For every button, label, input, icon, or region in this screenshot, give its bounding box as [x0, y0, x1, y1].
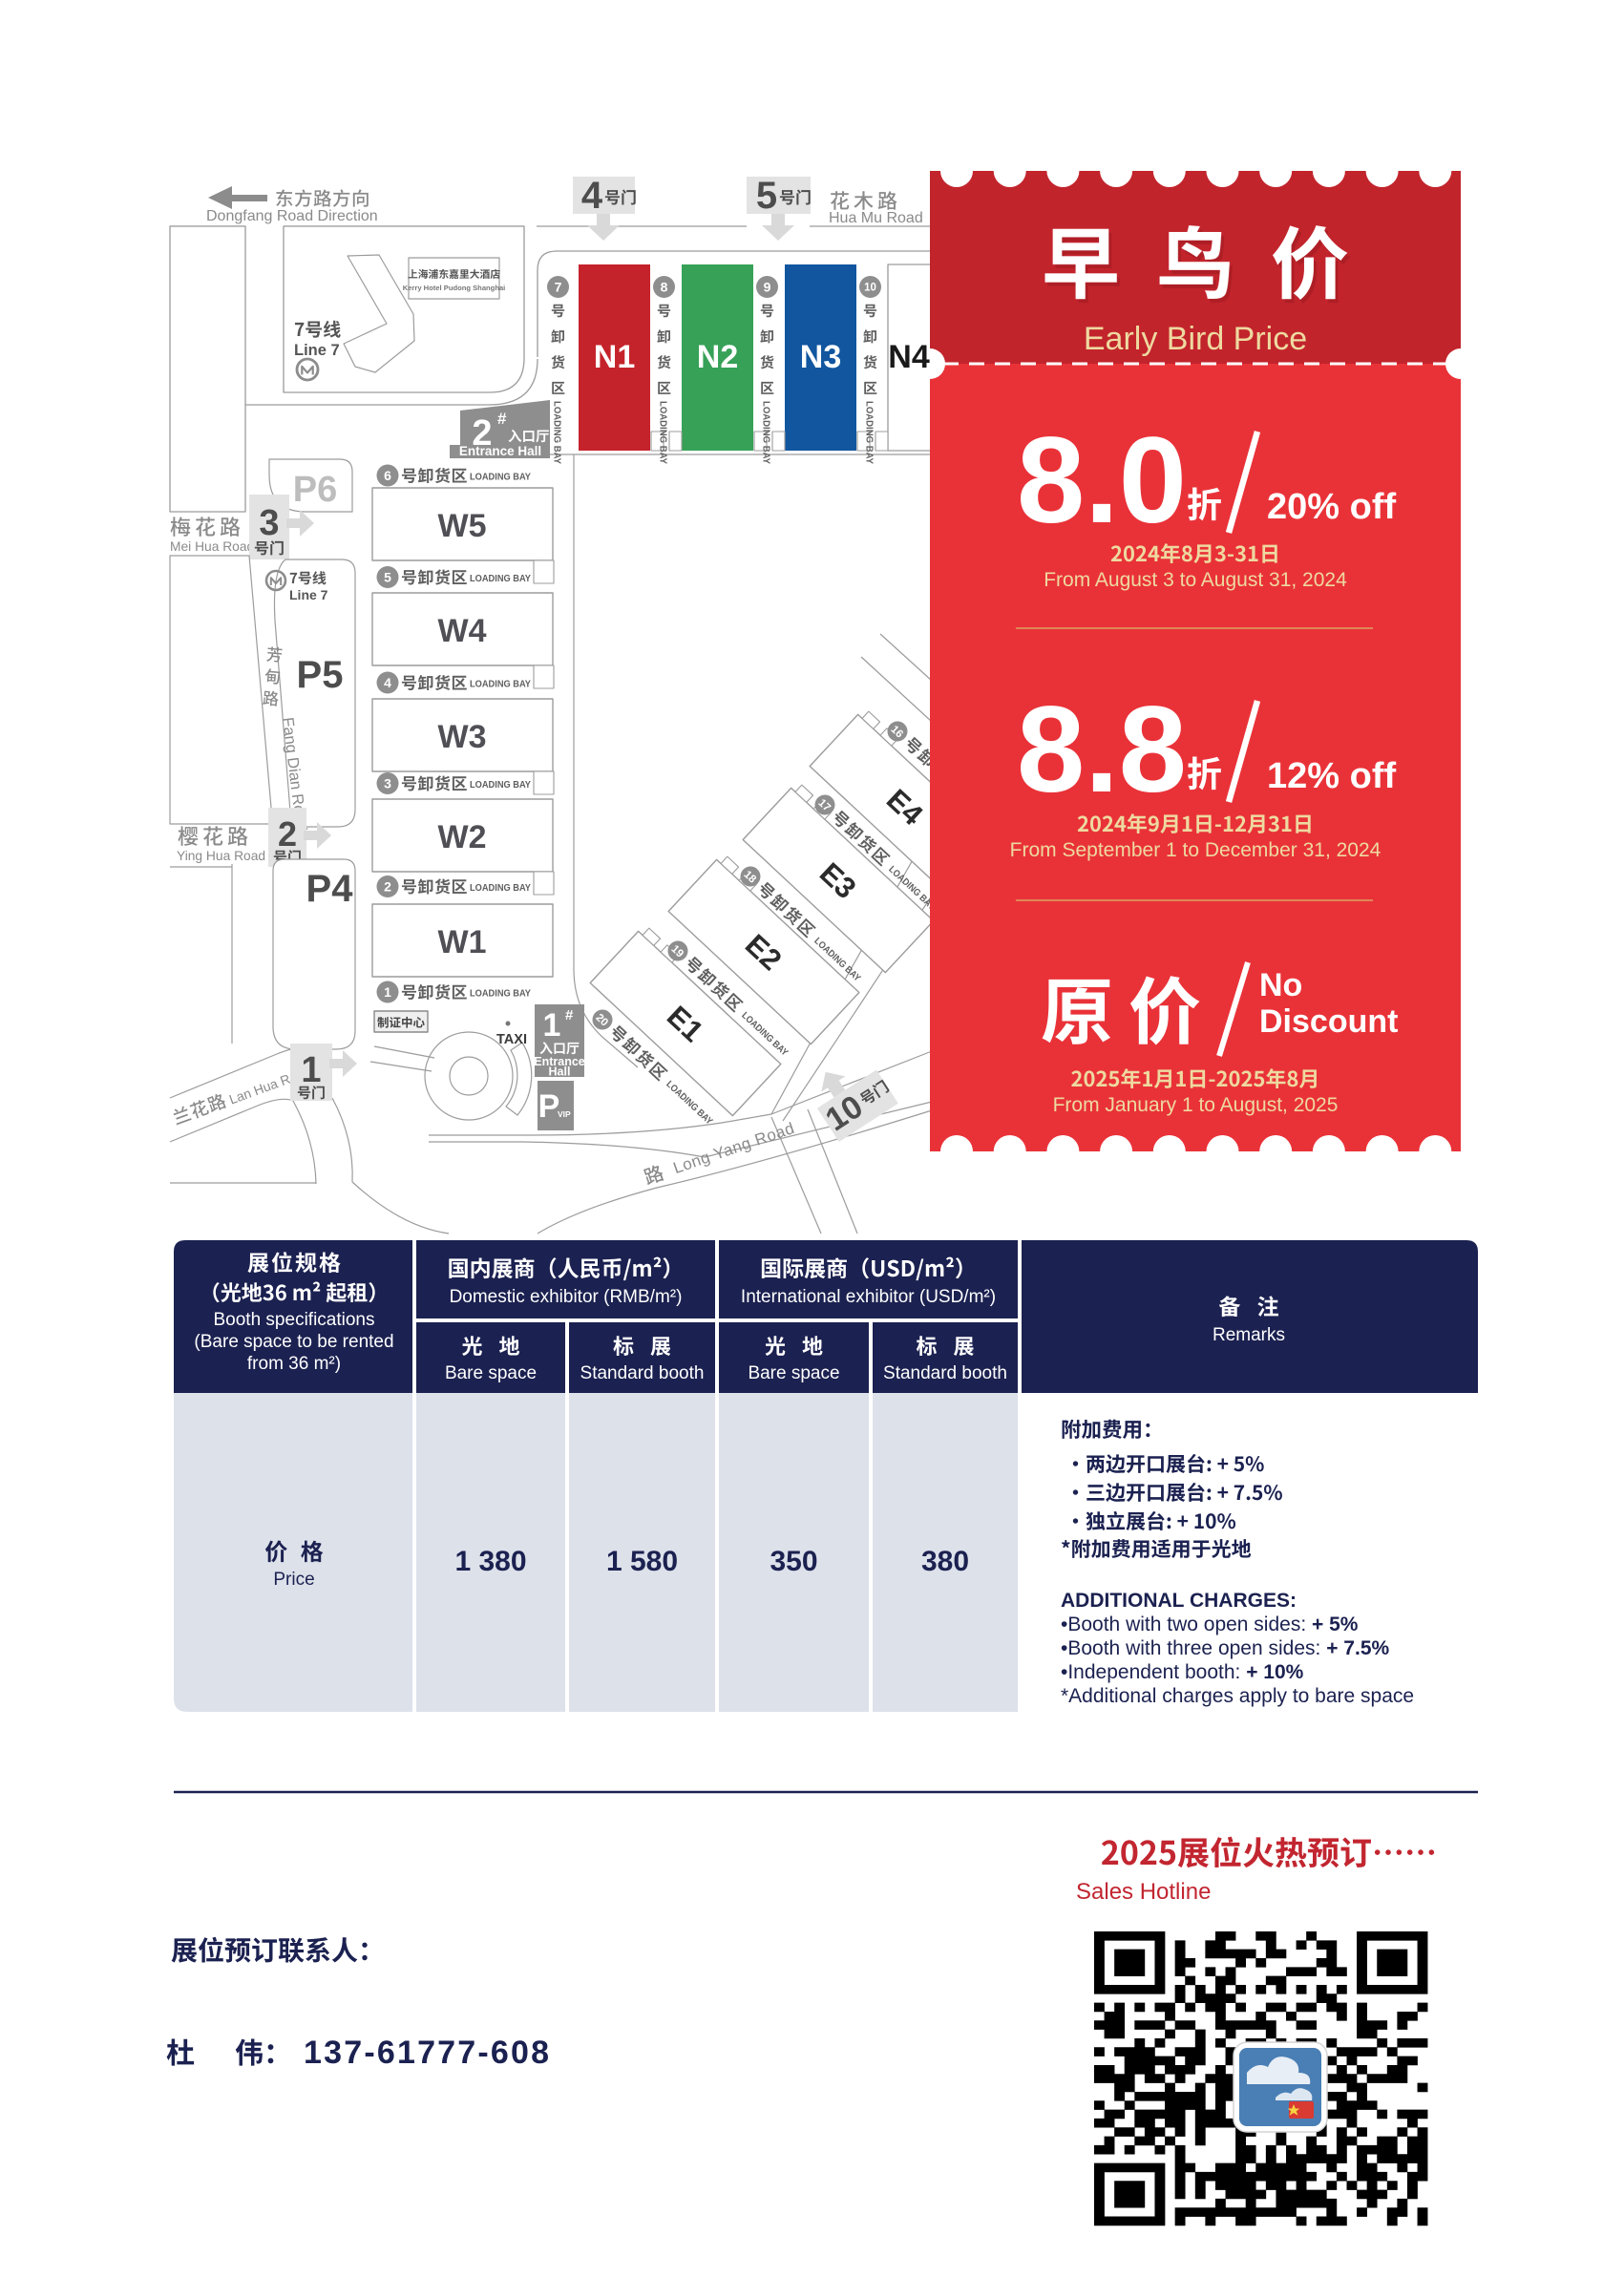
svg-text:From September 1 to December 3: From September 1 to December 31, 2024: [1010, 839, 1381, 861]
svg-text:Hall: Hall: [549, 1065, 571, 1079]
svg-text:8: 8: [661, 280, 668, 295]
svg-text:Early Bird Price: Early Bird Price: [1084, 321, 1307, 357]
svg-text:Domestic exhibitor (RMB/m²): Domestic exhibitor (RMB/m²): [450, 1287, 683, 1307]
svg-text:International exhibitor (USD/m: International exhibitor (USD/m²): [741, 1287, 996, 1307]
svg-text:LOADING BAY: LOADING BAY: [552, 401, 562, 464]
svg-text:20% off: 20% off: [1267, 487, 1396, 527]
svg-text:7: 7: [555, 280, 562, 295]
svg-text:TAXI: TAXI: [496, 1032, 527, 1047]
svg-text:LOADING BAY: LOADING BAY: [470, 882, 531, 894]
svg-text:P5: P5: [297, 654, 344, 696]
svg-text:Price: Price: [273, 1570, 314, 1590]
svg-text:LOADING BAY: LOADING BAY: [470, 779, 531, 791]
svg-text:Dongfang Road Direction: Dongfang Road Direction: [206, 208, 378, 224]
svg-text:Line 7: Line 7: [294, 342, 340, 359]
svg-text:N1: N1: [594, 339, 635, 375]
svg-text:P4: P4: [306, 868, 354, 910]
svg-text:8.0: 8.0: [1017, 412, 1187, 549]
svg-text:Ying Hua Road: Ying Hua Road: [177, 849, 265, 863]
svg-text:N3: N3: [800, 339, 841, 375]
svg-text:3: 3: [384, 776, 391, 791]
svg-text:LOADING BAY: LOADING BAY: [658, 401, 668, 464]
svg-text:4: 4: [384, 675, 391, 690]
svg-text:350: 350: [770, 1546, 817, 1577]
svg-text:N2: N2: [697, 339, 738, 375]
svg-text:3: 3: [259, 503, 279, 543]
svg-text:Line 7: Line 7: [289, 587, 328, 602]
svg-text:W2: W2: [438, 819, 487, 855]
svg-text:10: 10: [864, 283, 876, 294]
svg-text:Entrance Hall: Entrance Hall: [459, 444, 541, 458]
svg-text:4: 4: [581, 175, 603, 217]
svg-text:W5: W5: [438, 508, 487, 544]
svg-text:8.8: 8.8: [1017, 682, 1187, 818]
svg-text:1: 1: [543, 1007, 561, 1044]
svg-text:2: 2: [384, 879, 391, 895]
svg-text:•Booth with two open sides: +: •Booth with two open sides: + 5%: [1061, 1614, 1359, 1635]
svg-text:From January 1 to August, 2025: From January 1 to August, 2025: [1053, 1094, 1339, 1116]
svg-text:W1: W1: [438, 924, 487, 960]
svg-text:VIP: VIP: [558, 1109, 571, 1119]
svg-text:6: 6: [384, 468, 391, 483]
svg-text:5: 5: [384, 570, 391, 585]
svg-text:•Booth with three open sides:: •Booth with three open sides: + 7.5%: [1061, 1637, 1389, 1659]
svg-text:137-61777-608: 137-61777-608: [304, 2035, 551, 2071]
svg-text:Booth specifications: Booth specifications: [214, 1310, 375, 1330]
svg-text:Standard booth: Standard booth: [580, 1363, 705, 1383]
svg-text:2: 2: [278, 814, 297, 854]
svg-text:9: 9: [764, 280, 771, 295]
svg-text:No: No: [1259, 967, 1302, 1003]
svg-text:W4: W4: [438, 613, 487, 649]
svg-text:Bare space: Bare space: [748, 1363, 839, 1383]
svg-text:LOADING BAY: LOADING BAY: [470, 573, 531, 584]
svg-text:Kerry Hotel Pudong Shanghai: Kerry Hotel Pudong Shanghai: [403, 284, 506, 292]
svg-text:12% off: 12% off: [1267, 756, 1396, 796]
svg-text:Discount: Discount: [1259, 1003, 1398, 1040]
svg-text:Sales Hotline: Sales Hotline: [1076, 1879, 1211, 1905]
svg-text:(Bare space to be rented: (Bare space to be rented: [194, 1332, 393, 1352]
svg-text:Mei Hua Road: Mei Hua Road: [170, 539, 254, 554]
svg-text:380: 380: [921, 1546, 969, 1577]
svg-text:1: 1: [384, 984, 391, 1000]
svg-text:#: #: [565, 1007, 574, 1023]
svg-text:LOADING BAY: LOADING BAY: [470, 472, 531, 483]
svg-text:LOADING BAY: LOADING BAY: [864, 401, 875, 464]
svg-text:P6: P6: [293, 470, 337, 510]
svg-text:1 380: 1 380: [454, 1546, 526, 1577]
svg-text:Hua Mu Road: Hua Mu Road: [829, 210, 923, 226]
svg-text:1: 1: [301, 1050, 321, 1090]
svg-text:ADDITIONAL CHARGES:: ADDITIONAL CHARGES:: [1061, 1590, 1297, 1612]
svg-text:Standard booth: Standard booth: [883, 1363, 1007, 1383]
svg-text:LOADING BAY: LOADING BAY: [470, 988, 531, 1000]
svg-text:*Additional charges apply to b: *Additional charges apply to bare space: [1061, 1685, 1414, 1707]
svg-text:from 36 m²): from 36 m²): [247, 1354, 341, 1374]
svg-text:N4: N4: [888, 339, 930, 375]
svg-text:W3: W3: [438, 719, 487, 755]
svg-text:Bare space: Bare space: [445, 1363, 537, 1383]
svg-text:•Independent booth: + 10%: •Independent booth: + 10%: [1061, 1661, 1304, 1683]
svg-text:Remarks: Remarks: [1213, 1325, 1285, 1345]
svg-text:LOADING BAY: LOADING BAY: [761, 401, 771, 464]
svg-text:LOADING BAY: LOADING BAY: [470, 679, 531, 690]
svg-text:From August 3 to August 31, 20: From August 3 to August 31, 2024: [1044, 569, 1347, 591]
svg-text:5: 5: [756, 175, 777, 217]
svg-text:P: P: [538, 1088, 560, 1125]
svg-text:1 580: 1 580: [606, 1546, 678, 1577]
svg-text:#: #: [497, 410, 507, 428]
